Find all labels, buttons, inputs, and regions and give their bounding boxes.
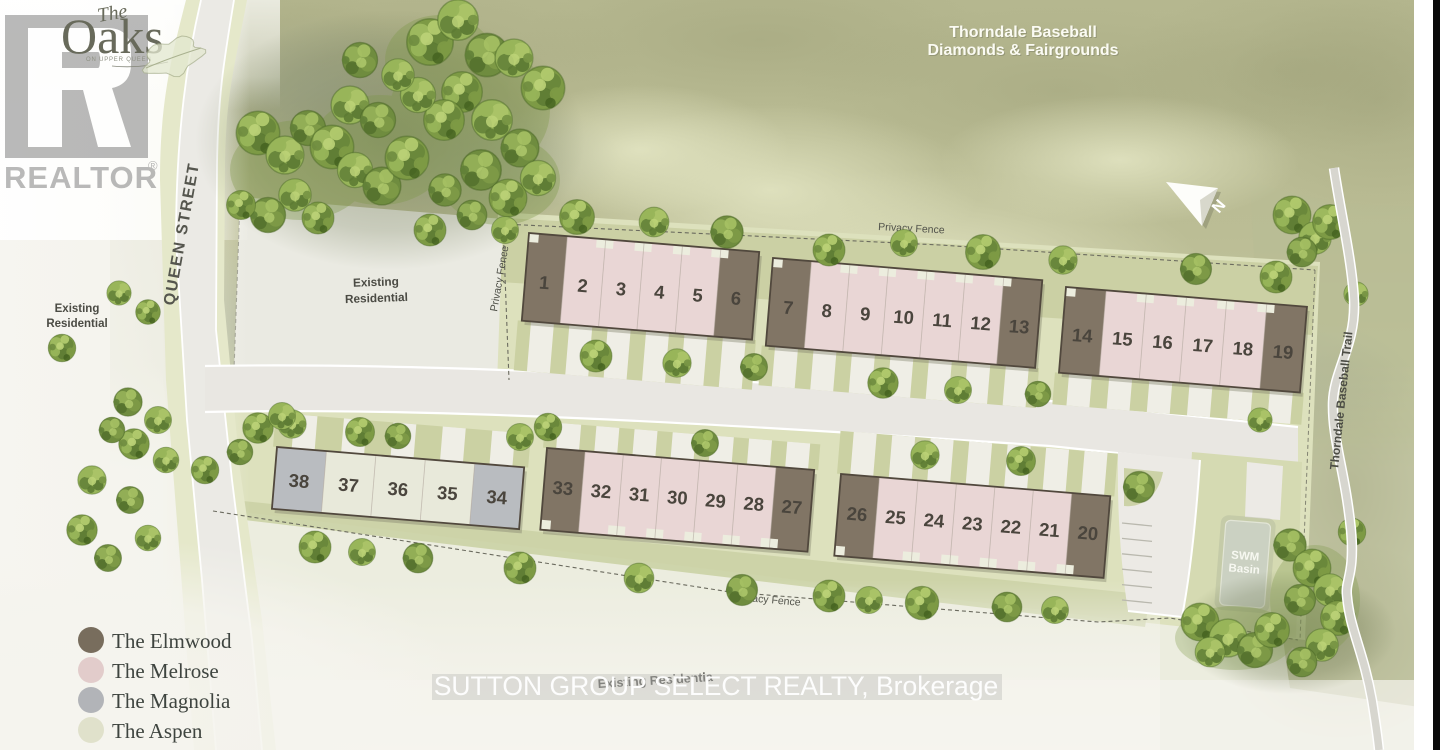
svg-text:7: 7 [782,297,794,319]
svg-text:2: 2 [577,275,589,297]
svg-text:26: 26 [846,503,868,526]
svg-text:13: 13 [1008,315,1030,338]
svg-text:6: 6 [730,287,742,309]
svg-text:The Melrose: The Melrose [112,659,219,683]
svg-text:Residential: Residential [46,318,107,330]
svg-text:31: 31 [628,483,650,506]
svg-text:SWM: SWM [1231,550,1260,564]
svg-text:12: 12 [970,312,992,335]
svg-text:11: 11 [932,309,953,332]
svg-text:23: 23 [961,512,983,535]
svg-text:ON UPPER QUEEN: ON UPPER QUEEN [86,57,152,63]
svg-text:9: 9 [859,303,871,325]
svg-text:Thorndale Baseball: Thorndale Baseball [949,24,1097,41]
svg-text:37: 37 [337,474,359,497]
svg-text:19: 19 [1272,341,1294,364]
svg-text:The Elmwood: The Elmwood [112,629,232,653]
svg-text:36: 36 [387,478,409,501]
svg-text:14: 14 [1071,324,1094,347]
svg-text:25: 25 [884,506,906,529]
svg-text:22: 22 [1000,515,1022,538]
svg-text:33: 33 [552,477,574,500]
svg-text:30: 30 [666,486,688,509]
svg-text:REALTOR: REALTOR [4,160,158,195]
svg-text:SUTTON GROUP SELECT REALTY, Br: SUTTON GROUP SELECT REALTY, Brokerage [434,671,999,701]
svg-text:24: 24 [923,509,946,532]
svg-text:16: 16 [1151,331,1173,354]
svg-text:21: 21 [1038,519,1060,542]
svg-text:27: 27 [781,496,803,519]
svg-text:17: 17 [1192,334,1214,357]
svg-text:Existing: Existing [55,303,100,315]
svg-text:Diamonds & Fairgrounds: Diamonds & Fairgrounds [927,42,1118,59]
svg-text:1: 1 [538,272,550,294]
svg-text:Residential: Residential [345,290,408,306]
svg-text:32: 32 [590,480,612,503]
svg-text:20: 20 [1077,522,1099,545]
svg-text:15: 15 [1111,327,1133,350]
svg-text:34: 34 [486,486,509,509]
svg-text:The Magnolia: The Magnolia [112,689,231,713]
svg-text:29: 29 [704,489,726,512]
svg-text:18: 18 [1232,337,1254,360]
svg-text:Existing: Existing [353,274,399,290]
svg-text:8: 8 [821,300,833,322]
svg-text:28: 28 [743,492,765,515]
svg-text:38: 38 [288,470,310,493]
svg-text:3: 3 [615,278,627,300]
svg-text:5: 5 [692,284,704,306]
svg-text:10: 10 [893,306,915,329]
svg-text:The Aspen: The Aspen [112,719,203,743]
svg-text:®: ® [148,158,158,173]
svg-text:35: 35 [436,482,458,505]
